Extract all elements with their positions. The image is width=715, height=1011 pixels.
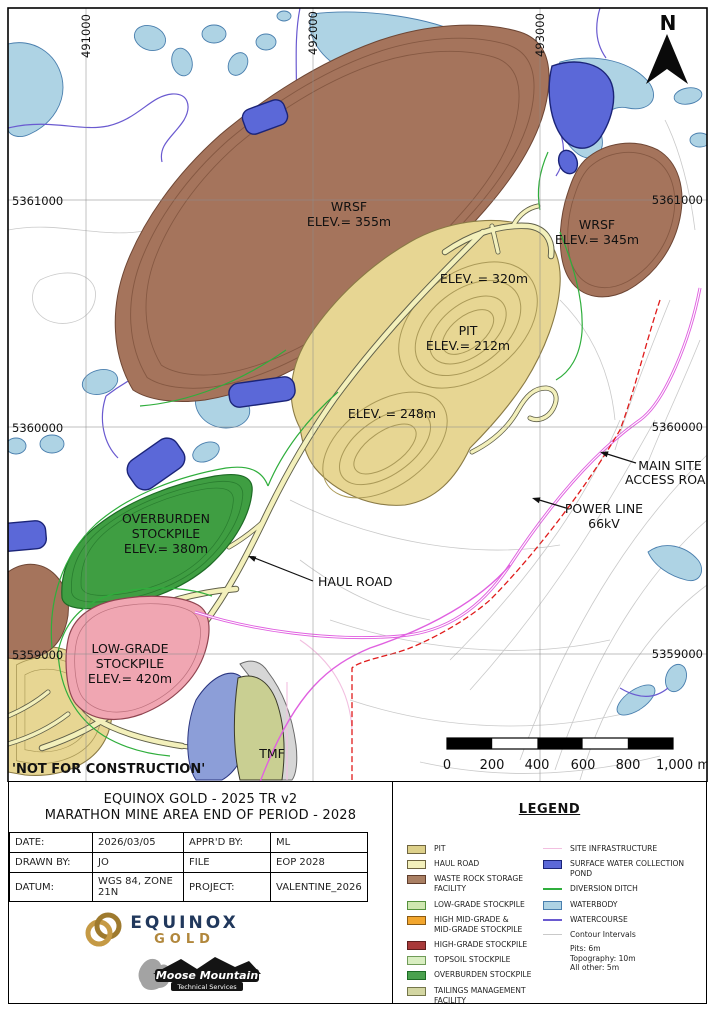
info-key: APPR'D BY: — [184, 833, 271, 853]
legend-item-overburden: OVERBURDEN STOCKPILE — [407, 970, 547, 980]
info-key: DATUM: — [10, 873, 93, 902]
svg-text:800: 800 — [616, 758, 641, 773]
svg-text:WRSF: WRSF — [331, 199, 367, 214]
haul-road-swatch — [407, 860, 426, 869]
svg-text:400: 400 — [525, 758, 550, 773]
title-block-left: EQUINOX GOLD - 2025 TR v2 MARATHON MINE … — [9, 782, 393, 1003]
mid-grade-swatch — [407, 916, 426, 925]
svg-text:ELEV.= 420m: ELEV.= 420m — [88, 671, 172, 686]
svg-text:493000: 493000 — [533, 13, 547, 57]
drawing-info-table: DATE: 2026/03/05 APPR'D BY: ML DRAWN BY:… — [9, 832, 368, 902]
table-row: DATE: 2026/03/05 APPR'D BY: ML — [10, 833, 368, 853]
legend-item-haul-road: HAUL ROAD — [407, 859, 547, 869]
not-for-construction-note: 'NOT FOR CONSTRUCTION' — [12, 762, 205, 777]
moose-mountain-logo: Moose Mountain Technical Services — [133, 952, 269, 994]
svg-text:PIT: PIT — [459, 323, 478, 338]
svg-text:OVERBURDEN: OVERBURDEN — [122, 511, 210, 526]
legend-item-high-grade: HIGH-GRADE STOCKPILE — [407, 940, 547, 950]
svg-text:LOW-GRADE: LOW-GRADE — [91, 641, 168, 656]
info-key: DATE: — [10, 833, 93, 853]
moose-sub: Technical Services — [176, 983, 237, 991]
svg-text:5359000: 5359000 — [12, 648, 63, 662]
legend-item-pit: PIT — [407, 844, 547, 854]
svg-text:ELEV.= 345m: ELEV.= 345m — [555, 232, 639, 247]
svg-text:STOCKPILE: STOCKPILE — [96, 656, 165, 671]
svg-text:600: 600 — [571, 758, 596, 773]
svg-text:ELEV.= 380m: ELEV.= 380m — [124, 541, 208, 556]
equinox-gold-logo: EQUINOX GOLD — [83, 910, 238, 950]
wrsf-swatch — [407, 875, 426, 884]
legend-item-site-infrastructure: SITE INFRASTRUCTURE — [543, 844, 703, 854]
mine-map: 491000 492000 493000 5361000 5360000 535… — [0, 0, 715, 782]
svg-text:ACCESS ROAD: ACCESS ROAD — [625, 472, 715, 487]
svg-text:ELEV.= 355m: ELEV.= 355m — [307, 214, 391, 229]
tmf-swatch — [407, 987, 426, 996]
svg-text:5361000: 5361000 — [652, 193, 703, 207]
svg-text:TMF: TMF — [258, 746, 285, 761]
drawing-title-line2: MARATHON MINE AREA END OF PERIOD - 2028 — [45, 808, 357, 823]
site-infrastructure-line-symbol — [543, 848, 562, 849]
legend-item-waterbody: WATERBODY — [543, 900, 703, 910]
legend-item-collection-pond: SURFACE WATER COLLECTION POND — [543, 859, 703, 879]
info-value: VALENTINE_2026 — [271, 873, 368, 902]
legend-item-topsoil: TOPSOIL STOCKPILE — [407, 955, 547, 965]
waterbody-swatch — [543, 901, 562, 910]
legend-item-wrsf: WASTE ROCK STORAGE FACILITY — [407, 874, 547, 894]
equinox-sub: GOLD — [154, 932, 215, 947]
table-row: DATUM: WGS 84, ZONE 21N PROJECT: VALENTI… — [10, 873, 368, 902]
legend-item-watercourse: WATERCOURSE — [543, 915, 703, 925]
svg-text:66kV: 66kV — [588, 516, 620, 531]
title-block: EQUINOX GOLD - 2025 TR v2 MARATHON MINE … — [8, 781, 707, 1004]
info-key: PROJECT: — [184, 873, 271, 902]
svg-text:5361000: 5361000 — [12, 194, 63, 208]
svg-text:POWER LINE: POWER LINE — [565, 501, 643, 516]
drawing-title: EQUINOX GOLD - 2025 TR v2 MARATHON MINE … — [9, 782, 392, 832]
info-key: FILE — [184, 853, 271, 873]
info-value: WGS 84, ZONE 21N — [93, 873, 184, 902]
equinox-rings-icon — [83, 910, 123, 950]
info-key: DRAWN BY: — [10, 853, 93, 873]
svg-text:5359000: 5359000 — [652, 647, 703, 661]
legend-left-column: PIT HAUL ROAD WASTE ROCK STORAGE FACILIT… — [407, 844, 547, 1011]
legend-item-contour-intervals: Contour Intervals — [543, 930, 703, 940]
svg-text:5360000: 5360000 — [652, 420, 703, 434]
svg-text:HAUL ROAD: HAUL ROAD — [318, 574, 393, 589]
low-grade-swatch — [407, 901, 426, 910]
diversion-ditch-line-symbol — [543, 888, 562, 890]
pit-swatch — [407, 845, 426, 854]
legend-item-mid-grade: HIGH MID-GRADE & MID-GRADE STOCKPILE — [407, 915, 547, 935]
info-value: ML — [271, 833, 368, 853]
table-row: DRAWN BY: JO FILE EOP 2028 — [10, 853, 368, 873]
svg-text:491000: 491000 — [79, 14, 93, 58]
map-sheet: { "sheet": { "not_for_construction": "'N… — [0, 0, 715, 1010]
contour-interval-other: All other: 5m — [570, 962, 703, 974]
svg-text:ELEV.= 212m: ELEV.= 212m — [426, 338, 510, 353]
legend-panel: LEGEND PIT HAUL ROAD WASTE ROCK STORAGE … — [393, 782, 706, 1003]
watercourse-line-symbol — [543, 919, 562, 921]
moose-name: Moose Mountain — [156, 969, 259, 982]
svg-text:0: 0 — [443, 758, 451, 773]
svg-text:1,000 m: 1,000 m — [656, 758, 710, 773]
legend-item-diversion-ditch: DIVERSION DITCH — [543, 884, 703, 894]
collection-pond-swatch — [543, 860, 562, 869]
svg-text:STOCKPILE: STOCKPILE — [132, 526, 201, 541]
logo-area: EQUINOX GOLD Moose Mountain Technical Se… — [9, 902, 393, 1002]
svg-text:MAIN SITE: MAIN SITE — [638, 458, 702, 473]
high-grade-swatch — [407, 941, 426, 950]
svg-text:492000: 492000 — [306, 11, 320, 55]
info-value: 2026/03/05 — [93, 833, 184, 853]
legend-title: LEGEND — [393, 802, 706, 817]
svg-text:200: 200 — [480, 758, 505, 773]
svg-text:ELEV. = 248m: ELEV. = 248m — [348, 406, 436, 421]
legend-item-tmf: TAILINGS MANAGEMENT FACILITY — [407, 986, 547, 1006]
svg-text:5360000: 5360000 — [12, 421, 63, 435]
svg-text:ELEV. = 320m: ELEV. = 320m — [440, 271, 528, 286]
legend-right-column: SITE INFRASTRUCTURE SURFACE WATER COLLEC… — [543, 844, 703, 974]
svg-text:N: N — [660, 11, 677, 35]
contour-line-symbol — [543, 934, 562, 935]
equinox-name: EQUINOX — [130, 913, 238, 933]
drawing-title-line1: EQUINOX GOLD - 2025 TR v2 — [104, 792, 298, 807]
equinox-wordmark: EQUINOX GOLD — [130, 913, 238, 947]
info-value: EOP 2028 — [271, 853, 368, 873]
topsoil-swatch — [407, 956, 426, 965]
svg-text:WRSF: WRSF — [579, 217, 615, 232]
info-value: JO — [93, 853, 184, 873]
overburden-swatch — [407, 971, 426, 980]
legend-item-low-grade: LOW-GRADE STOCKPILE — [407, 900, 547, 910]
